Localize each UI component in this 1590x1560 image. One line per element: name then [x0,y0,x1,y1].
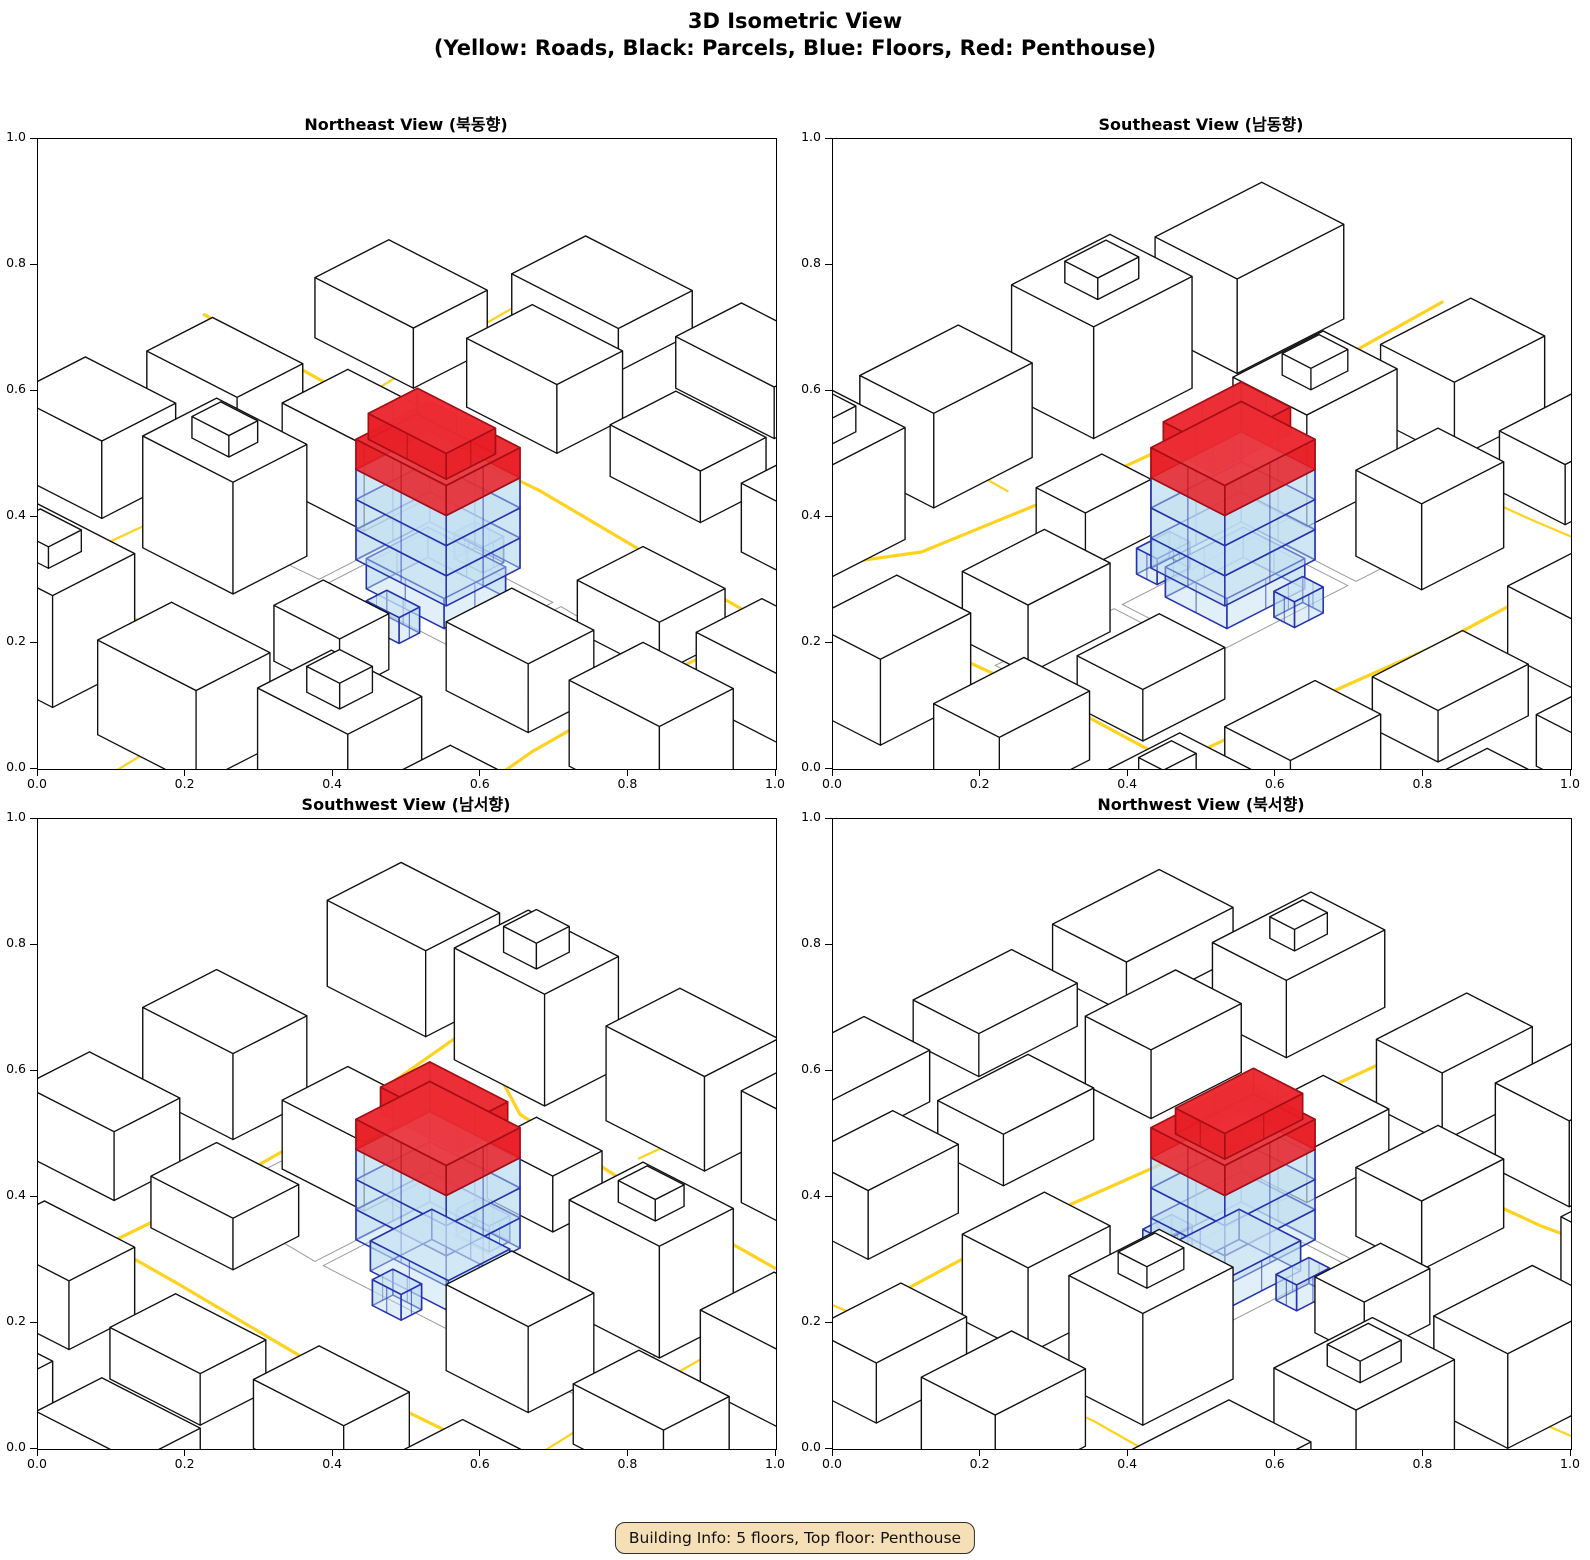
x-tick-label: 1.0 [760,778,790,791]
x-tick-mark [1422,769,1423,776]
x-tick-mark [37,769,38,776]
subplot-northwest-plot [832,818,1572,1450]
subplot-northeast: Northeast View (북동향) 0.00.00.20.20.40.40… [37,138,775,768]
y-tick-mark [30,264,37,265]
x-tick-mark [1127,769,1128,776]
subplot-southwest-plot [37,818,777,1450]
x-tick-mark [184,769,185,776]
x-tick-mark [775,769,776,776]
y-tick-mark [30,818,37,819]
x-tick-mark [775,1449,776,1456]
y-tick-label: 0.4 [0,1189,26,1202]
y-tick-label: 0.2 [0,1315,26,1328]
x-tick-label: 0.4 [317,778,347,791]
x-tick-label: 0.6 [1260,1458,1290,1471]
y-tick-mark [825,1196,832,1197]
subplot-northeast-title: Northeast View (북동향) [37,111,775,135]
x-tick-label: 0.8 [612,778,642,791]
y-tick-label: 0.8 [0,257,26,270]
y-tick-label: 0.6 [791,383,821,396]
x-tick-mark [37,1449,38,1456]
y-tick-label: 0.8 [791,257,821,270]
x-tick-mark [627,1449,628,1456]
x-tick-mark [1127,1449,1128,1456]
y-tick-mark [30,516,37,517]
x-tick-label: 0.6 [1260,778,1290,791]
x-tick-label: 0.8 [1407,778,1437,791]
scene-northeast-svg [38,139,776,769]
y-tick-mark [825,390,832,391]
x-tick-mark [1274,1449,1275,1456]
x-tick-label: 0.4 [1112,778,1142,791]
x-tick-label: 0.6 [465,1458,495,1471]
x-tick-mark [479,769,480,776]
y-tick-mark [30,390,37,391]
y-tick-mark [825,138,832,139]
subplot-northeast-plot [37,138,777,770]
subplot-northwest: Northwest View (북서향) 0.00.00.20.20.40.40… [832,818,1570,1448]
x-tick-label: 0.8 [1407,1458,1437,1471]
y-tick-label: 0.4 [791,1189,821,1202]
x-tick-label: 0.0 [817,778,847,791]
y-tick-label: 0.0 [791,761,821,774]
x-tick-label: 0.8 [612,1458,642,1471]
x-tick-mark [1570,769,1571,776]
y-tick-label: 1.0 [0,811,26,824]
y-tick-label: 0.4 [0,509,26,522]
y-tick-mark [825,264,832,265]
y-tick-label: 0.8 [0,937,26,950]
x-tick-mark [479,1449,480,1456]
scene-southwest-svg [38,819,776,1449]
y-tick-label: 0.0 [0,761,26,774]
x-tick-label: 0.0 [817,1458,847,1471]
x-tick-label: 0.2 [170,1458,200,1471]
y-tick-mark [825,642,832,643]
subplot-southeast-plot [832,138,1572,770]
subplot-southeast: Southeast View (남동향) 0.00.00.20.20.40.40… [832,138,1570,768]
x-tick-label: 0.2 [965,1458,995,1471]
y-tick-mark [30,1322,37,1323]
y-tick-label: 0.0 [0,1441,26,1454]
y-tick-label: 0.4 [791,509,821,522]
x-tick-label: 0.2 [170,778,200,791]
y-tick-mark [30,138,37,139]
x-tick-label: 0.4 [1112,1458,1142,1471]
x-tick-mark [332,769,333,776]
x-tick-label: 1.0 [760,1458,790,1471]
y-tick-label: 0.0 [791,1441,821,1454]
x-tick-mark [979,1449,980,1456]
x-tick-mark [332,1449,333,1456]
x-tick-mark [832,769,833,776]
x-tick-label: 0.2 [965,778,995,791]
y-tick-mark [825,1322,832,1323]
x-tick-mark [832,1449,833,1456]
x-tick-label: 1.0 [1555,1458,1585,1471]
figure-title-line1: 3D Isometric View [0,8,1590,35]
x-tick-mark [979,769,980,776]
subplot-southeast-title: Southeast View (남동향) [832,111,1570,135]
y-tick-label: 1.0 [0,131,26,144]
x-tick-mark [1570,1449,1571,1456]
subplot-southwest-title: Southwest View (남서향) [37,791,775,815]
y-tick-mark [825,944,832,945]
y-tick-mark [825,1070,832,1071]
y-tick-label: 0.2 [0,635,26,648]
y-tick-mark [30,642,37,643]
scene-southeast-svg [833,139,1571,769]
y-tick-label: 0.8 [791,937,821,950]
y-tick-mark [30,1070,37,1071]
x-tick-label: 1.0 [1555,778,1585,791]
x-tick-mark [1422,1449,1423,1456]
y-tick-label: 1.0 [791,131,821,144]
figure-title: 3D Isometric View (Yellow: Roads, Black:… [0,8,1590,62]
scene-northwest-svg [833,819,1571,1449]
y-tick-label: 0.2 [791,635,821,648]
x-tick-label: 0.6 [465,778,495,791]
x-tick-mark [1274,769,1275,776]
y-tick-label: 0.6 [0,383,26,396]
y-tick-label: 1.0 [791,811,821,824]
y-tick-mark [825,818,832,819]
subplot-northwest-title: Northwest View (북서향) [832,791,1570,815]
x-tick-label: 0.0 [22,778,52,791]
figure-title-line2: (Yellow: Roads, Black: Parcels, Blue: Fl… [0,35,1590,62]
x-tick-label: 0.4 [317,1458,347,1471]
x-tick-label: 0.0 [22,1458,52,1471]
y-tick-mark [30,944,37,945]
y-tick-mark [30,1196,37,1197]
x-tick-mark [184,1449,185,1456]
y-tick-mark [825,516,832,517]
y-tick-label: 0.6 [791,1063,821,1076]
y-tick-label: 0.2 [791,1315,821,1328]
building-info-badge: Building Info: 5 floors, Top floor: Pent… [615,1522,975,1554]
y-tick-label: 0.6 [0,1063,26,1076]
subplot-southwest: Southwest View (남서향) 0.00.00.20.20.40.40… [37,818,775,1448]
x-tick-mark [627,769,628,776]
